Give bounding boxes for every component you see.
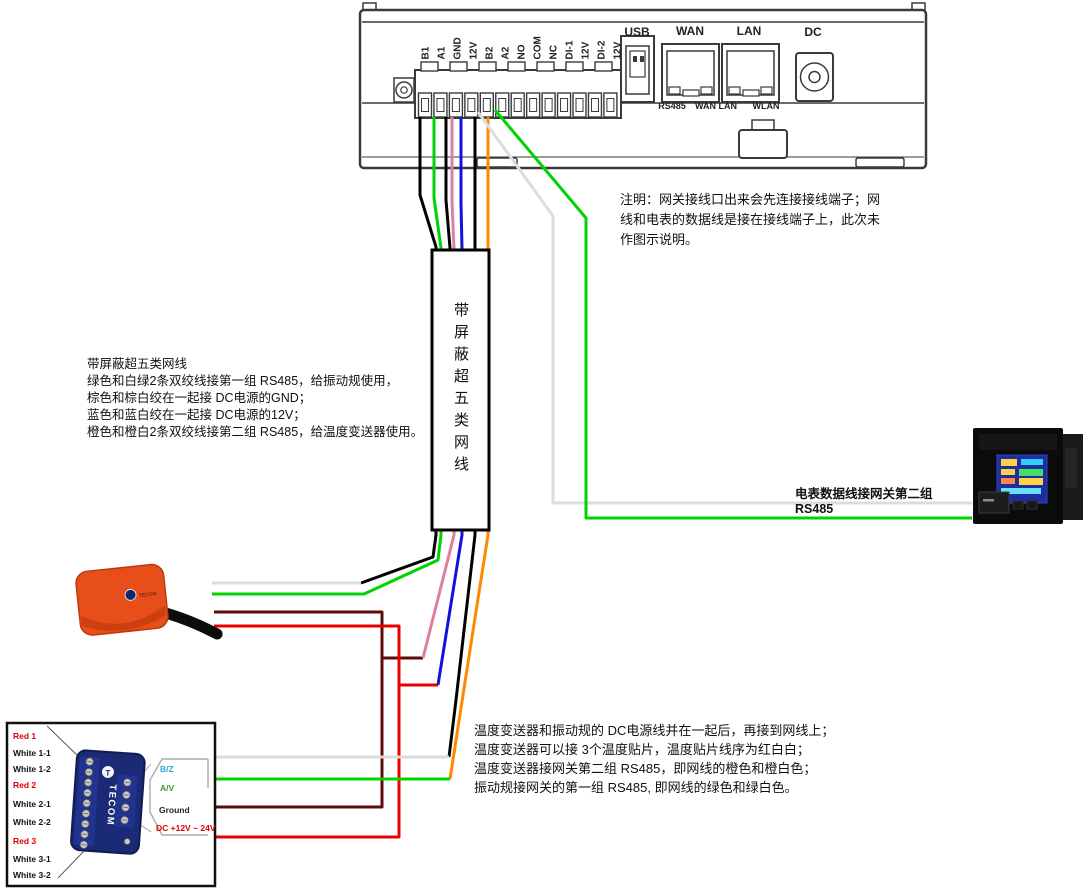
cable-description: 带屏蔽超五类网线 绿色和白绿2条双绞线接第一组 RS485，给振动规使用， 棕色… [87, 356, 432, 441]
cable-desc-line4: 蓝色和蓝白绞在一起接 DC电源的12V； [87, 407, 432, 424]
gateway-note-line3: 作图示说明。 [620, 230, 920, 250]
wan-label: WAN [670, 24, 710, 38]
transmitter-pin-white31: White 3-1 [13, 854, 51, 864]
transmitter-pin-red2: Red 2 [13, 780, 36, 790]
terminal-label-gnd: GND [453, 16, 464, 60]
gateway-note-line1: 注明：网关接线口出来会先连接接线端子；网 [620, 190, 920, 210]
bottom-note-line4: 振动规接网关的第一组 RS485, 即网线的绿色和绿白色。 [474, 778, 874, 797]
transmitter-signal-dc: DC +12V ~ 24V [156, 823, 216, 833]
transmitter-pin-white12: White 1-2 [13, 764, 51, 774]
transmitter-pin-red1: Red 1 [13, 731, 36, 741]
rs485-sublabel: RS485 [652, 101, 692, 111]
bottom-note-line3: 温度变送器接网关第二组 RS485，即网线的橙色和橙白色； [474, 759, 874, 778]
wire-black-b1 [361, 117, 436, 583]
transmitter-signal-av: A/V [160, 783, 174, 793]
bottom-note-line2: 温度变送器可以接 3个温度贴片，温度贴片线序为红白白； [474, 740, 874, 759]
dc-jack [796, 53, 833, 101]
vibration-sensor-photo: TECOM [75, 558, 217, 648]
cable-vertical-label: 带屏蔽超五类网线 [450, 302, 471, 532]
wiring-diagram: TECOM [0, 0, 1088, 892]
bottom-note: 温度变送器和振动规的 DC电源线并在一起后，再接到网线上； 温度变送器可以接 3… [474, 721, 874, 797]
terminal-label-12v-1: 12V [469, 16, 480, 60]
lan-port [722, 44, 779, 102]
wan-lan-sublabel: WAN LAN [691, 101, 741, 111]
cable-desc-line5: 橙色和橙白2条双绞线接第二组 RS485，给温度变送器使用。 [87, 424, 432, 441]
transmitter-pin-red3: Red 3 [13, 836, 36, 846]
transmitter-device-photo: T TECOM [70, 750, 145, 854]
terminal-label-b1: B1 [421, 16, 432, 60]
terminal-label-com: COM [533, 16, 544, 60]
transmitter-pin-white22: White 2-2 [13, 817, 51, 827]
transmitter-signal-ground: Ground [159, 805, 190, 815]
cable-desc-line2: 绿色和白绿2条双绞线接第一组 RS485，给振动规使用， [87, 373, 432, 390]
wire-green-to-meter [495, 110, 972, 518]
terminal-label-a1: A1 [437, 16, 448, 60]
lan-label: LAN [729, 24, 769, 38]
terminal-label-b2: B2 [485, 16, 496, 60]
gateway-note-line2: 线和电表的数据线是接在接线端子上，此次未 [620, 210, 920, 230]
terminal-label-no: NO [517, 16, 528, 60]
usb-port [621, 36, 654, 102]
transmitter-pin-white11: White 1-1 [13, 748, 51, 758]
bottom-note-line1: 温度变送器和振动规的 DC电源线并在一起后，再接到网线上； [474, 721, 874, 740]
wire-12v-red [214, 626, 399, 837]
cable-desc-line3: 棕色和棕白绞在一起接 DC电源的GND； [87, 390, 432, 407]
gateway-foot-right [856, 158, 904, 167]
dc-label: DC [793, 25, 833, 39]
terminal-label-di2: DI-2 [597, 16, 608, 60]
gateway-note: 注明：网关接线口出来会先连接接线端子；网 线和电表的数据线是接在接线端子上，此次… [620, 190, 920, 250]
usb-label: USB [617, 25, 657, 39]
cable-desc-line1: 带屏蔽超五类网线 [87, 356, 432, 373]
transmitter-pin-white21: White 2-1 [13, 799, 51, 809]
transmitter-pin-white32: White 3-2 [13, 870, 51, 880]
terminal-label-a2: A2 [501, 16, 512, 60]
terminal-label-12v-2: 12V [581, 16, 592, 60]
power-meter-photo [973, 428, 1083, 524]
meter-label: 电表数据线接网关第二组 RS485 [795, 483, 965, 516]
wlan-sublabel: WLAN [746, 101, 786, 111]
svg-text:T: T [105, 768, 111, 777]
transmitter-signal-bz: B/Z [160, 764, 174, 774]
wan-port [662, 44, 719, 102]
terminal-label-di1: DI-1 [565, 16, 576, 60]
terminal-label-nc: NC [549, 16, 560, 60]
sensor-logo-icon [124, 589, 136, 601]
wire-white-to-meter [478, 112, 972, 503]
terminal-block [394, 62, 648, 118]
